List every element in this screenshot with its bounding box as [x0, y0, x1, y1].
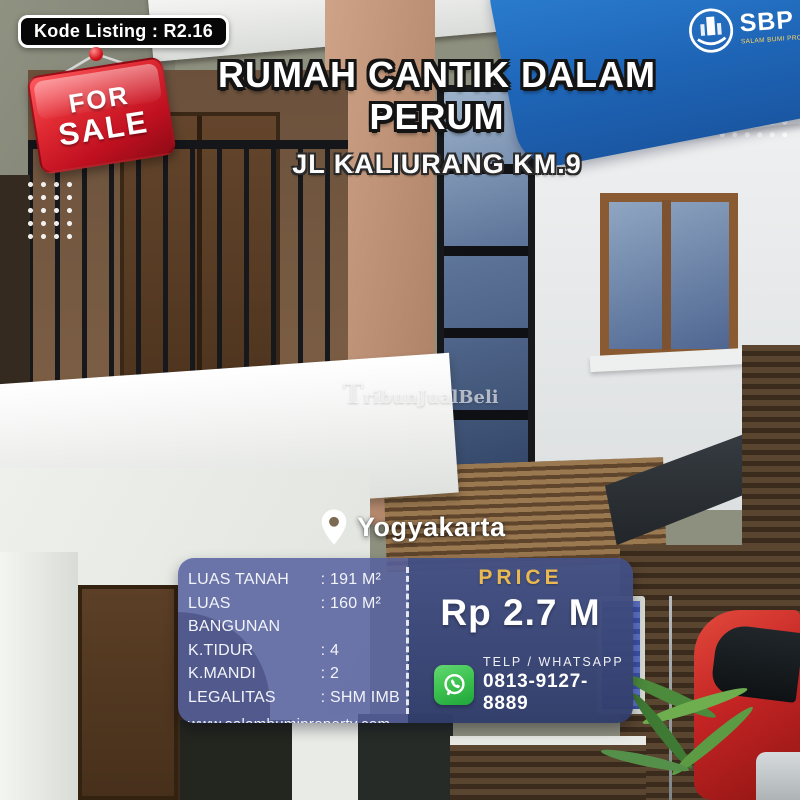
bottom-dark-mid [358, 714, 453, 800]
price-section: PRICE Rp 2.7 M TELP / WHATSAPP 0813-9127… [408, 558, 633, 723]
for-sale-line2: SALE [56, 106, 151, 152]
detail-row-k-tidur: K.TIDUR : 4 [188, 639, 408, 663]
detail-value: 4 [330, 639, 339, 663]
location-row: Yogyakarta [320, 508, 506, 546]
white-pillar [0, 552, 78, 800]
bottom-slat-trim [450, 736, 646, 745]
headline-block: RUMAH CANTIK DALAM PERUM JL KALIURANG KM… [167, 54, 707, 180]
headline-line2: PERUM [167, 96, 707, 138]
front-door [78, 585, 178, 800]
detail-label: LUAS TANAH [188, 568, 316, 592]
detail-separator: : [316, 662, 330, 686]
detail-separator: : [316, 686, 330, 710]
detail-row-k-mandi: K.MANDI : 2 [188, 662, 408, 686]
property-details: LUAS TANAH : 191 M² LUAS BANGUNAN : 160 … [178, 558, 408, 723]
location-pin-icon [320, 508, 348, 546]
headline-address: JL KALIURANG KM.9 [167, 149, 707, 180]
detail-value: 191 M² [330, 568, 381, 592]
price-heading: PRICE [408, 566, 633, 590]
tag-pin-icon [89, 47, 103, 61]
detail-value: SHM IMB [330, 686, 400, 710]
dot-grid-left [24, 178, 72, 239]
detail-label: LUAS BANGUNAN [188, 592, 316, 639]
website-url: www.salambumiproperty.com [188, 716, 408, 723]
upper-right-window-divider [662, 200, 671, 350]
detail-label: LEGALITAS [188, 686, 316, 710]
detail-row-luas-tanah: LUAS TANAH : 191 M² [188, 568, 408, 592]
watermark-text: TribunJualBeli [343, 379, 499, 410]
detail-separator: : [316, 592, 330, 639]
contact-row: TELP / WHATSAPP 0813-9127-8889 [434, 655, 633, 715]
detail-separator: : [316, 568, 330, 592]
flyer-canvas: SBP SALAM BUMI PROPERTY Kode Listing : R… [0, 0, 800, 800]
headline-line1: RUMAH CANTIK DALAM [167, 54, 707, 96]
red-car-bumper [756, 752, 800, 800]
detail-label: K.TIDUR [188, 639, 316, 663]
detail-row-legalitas: LEGALITAS : SHM IMB [188, 686, 408, 710]
brand-logo: SBP SALAM BUMI PROPERTY [687, 1, 800, 55]
detail-label: K.MANDI [188, 662, 316, 686]
bottom-white-column [292, 714, 360, 800]
brand-abbr: SBP [739, 6, 800, 37]
detail-value: 2 [330, 662, 339, 686]
for-sale-tag: FOR SALE [26, 56, 177, 175]
price-amount: Rp 2.7 M [408, 592, 633, 634]
contact-phone: 0813-9127-8889 [483, 671, 633, 715]
sbp-logo-icon [687, 6, 736, 55]
detail-value: 160 M² [330, 592, 381, 639]
panel-divider [406, 567, 409, 714]
bottom-dark-left [180, 720, 295, 800]
contact-label: TELP / WHATSAPP [483, 655, 633, 669]
whatsapp-icon [434, 665, 474, 705]
info-panel: LUAS TANAH : 191 M² LUAS BANGUNAN : 160 … [178, 558, 633, 723]
detail-separator: : [316, 639, 330, 663]
location-city: Yogyakarta [357, 512, 506, 543]
detail-row-luas-bangunan: LUAS BANGUNAN : 160 M² [188, 592, 408, 639]
